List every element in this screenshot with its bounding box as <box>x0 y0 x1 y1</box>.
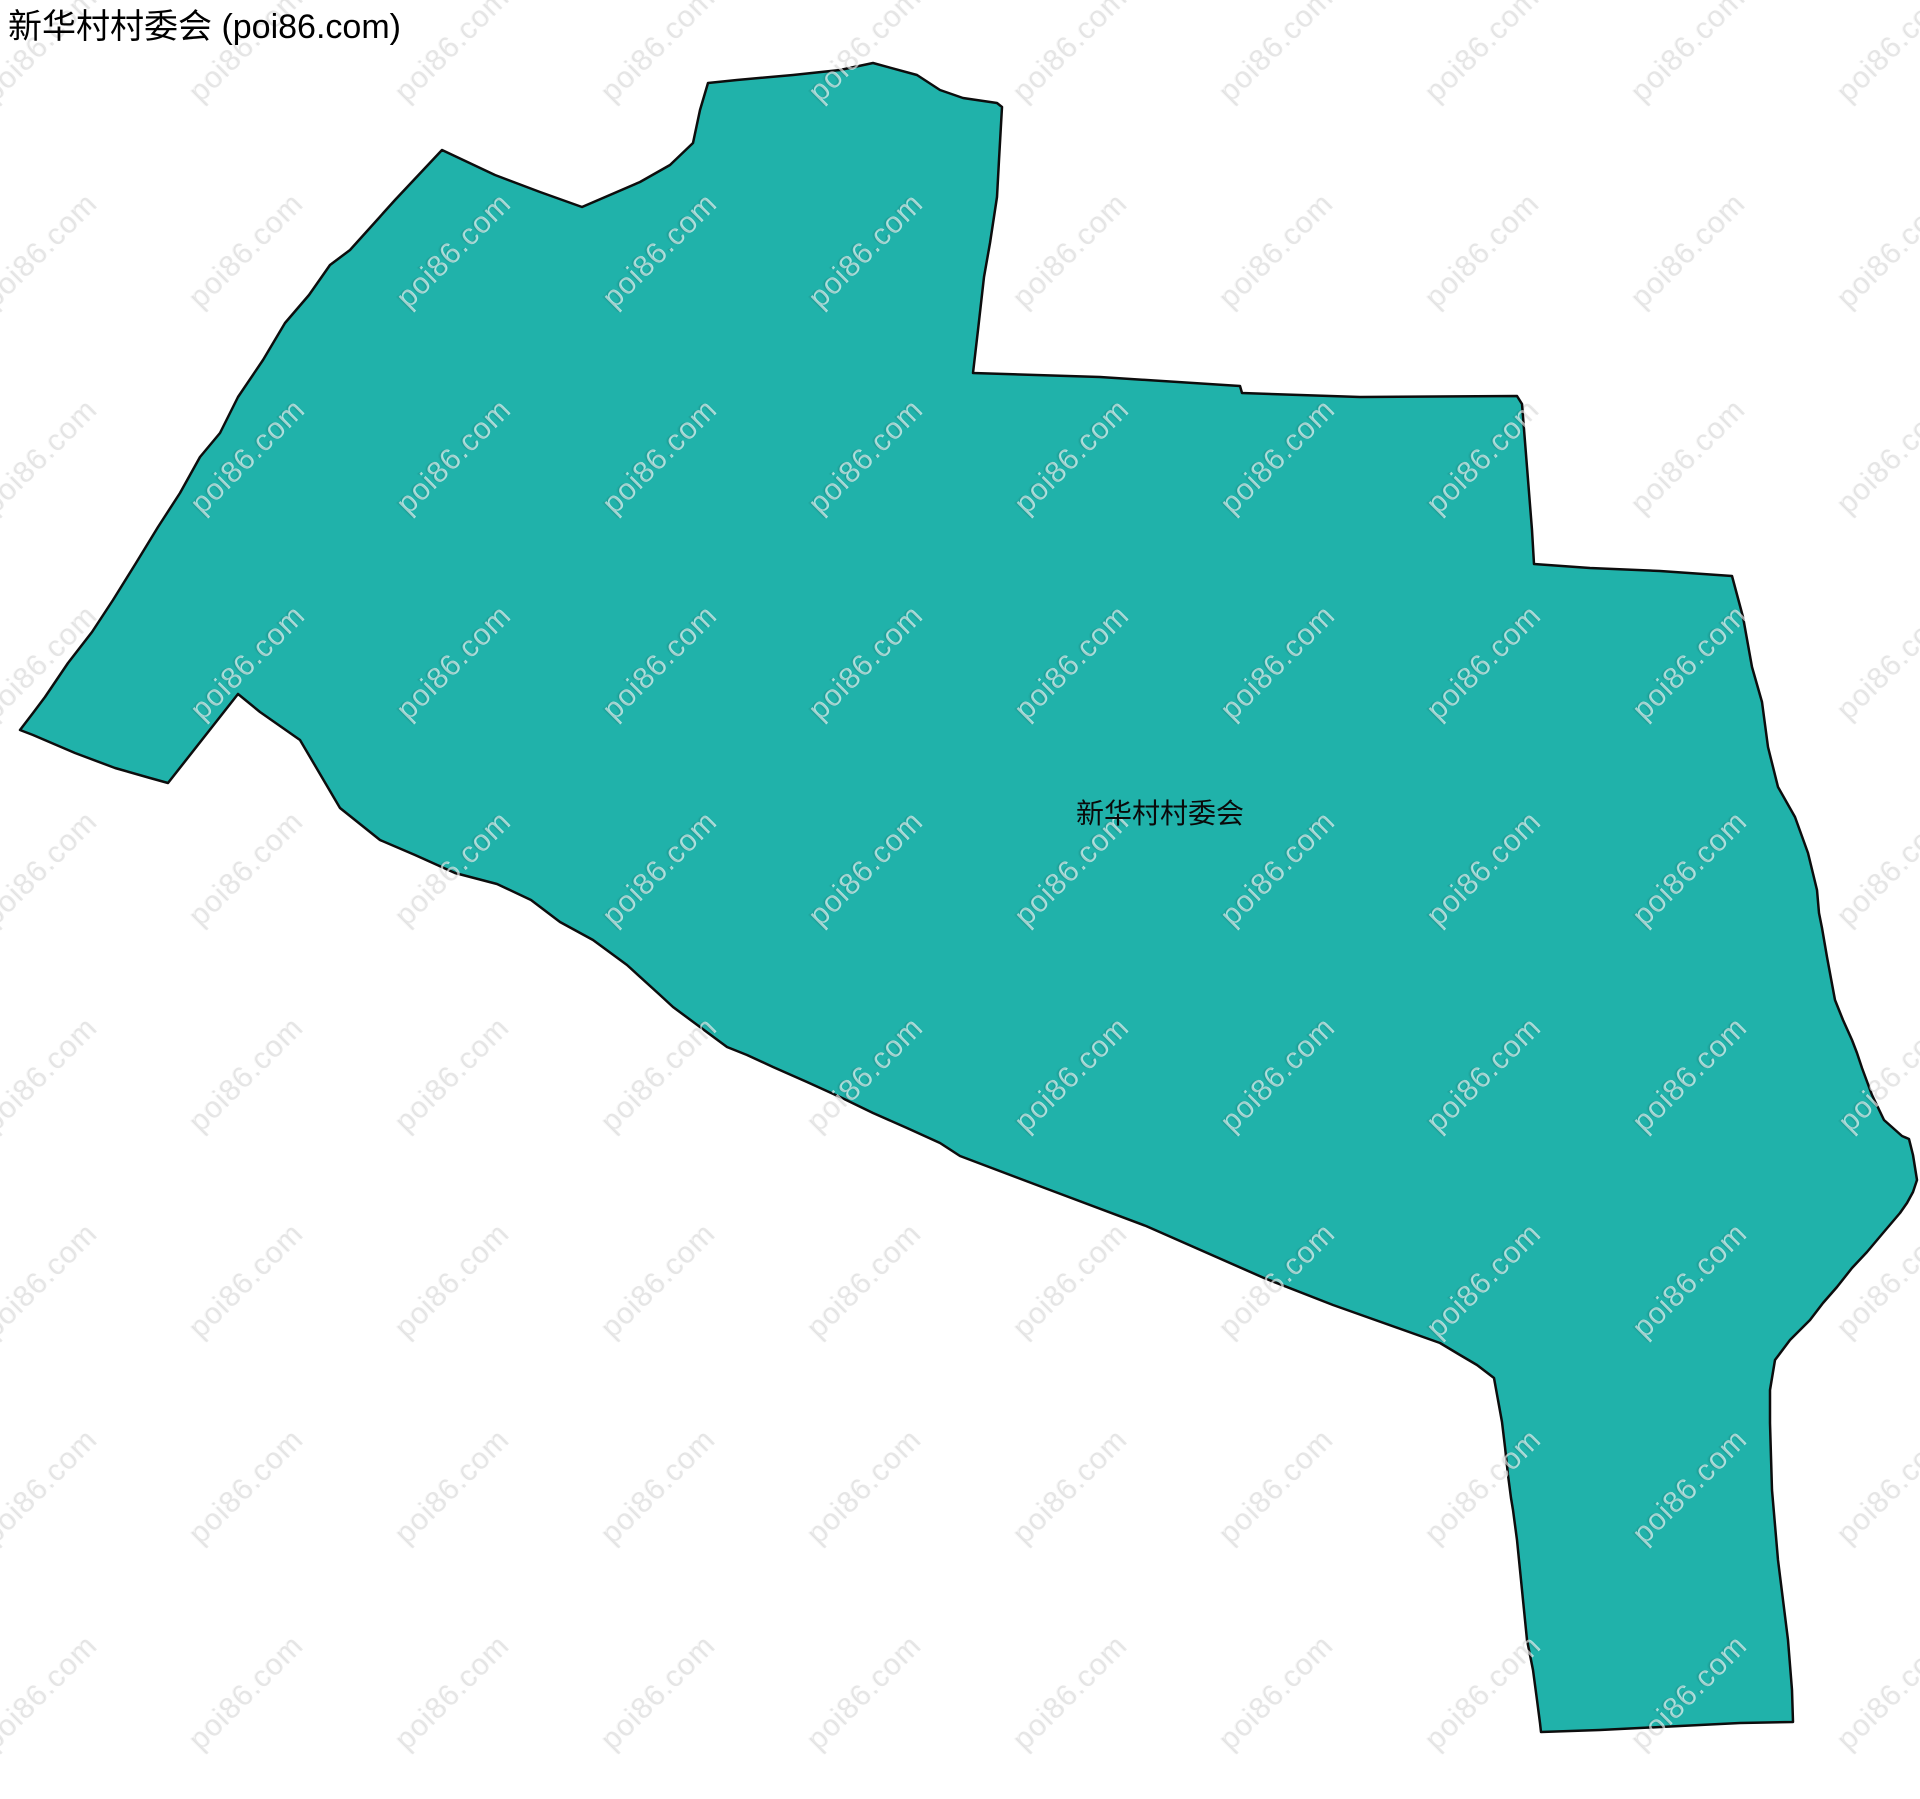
region-label: 新华村村委会 <box>1076 792 1244 832</box>
map-canvas: poi86.compoi86.compoi86.compoi86.compoi8… <box>0 0 1920 1799</box>
region-boundary-polygon[interactable] <box>20 63 1917 1732</box>
boundary-map-svg <box>0 0 1920 1799</box>
page-title: 新华村村委会 (poi86.com) <box>8 6 401 49</box>
